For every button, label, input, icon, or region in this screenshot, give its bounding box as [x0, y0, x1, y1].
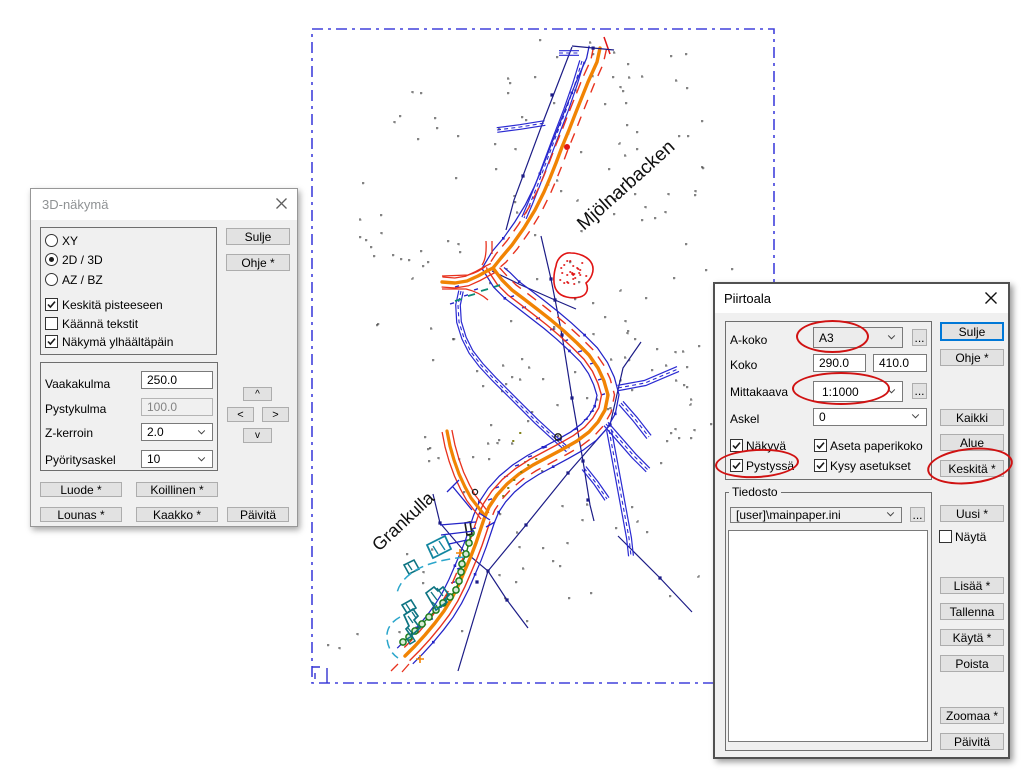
svg-text:Mjölnarbacken: Mjölnarbacken	[573, 136, 679, 234]
